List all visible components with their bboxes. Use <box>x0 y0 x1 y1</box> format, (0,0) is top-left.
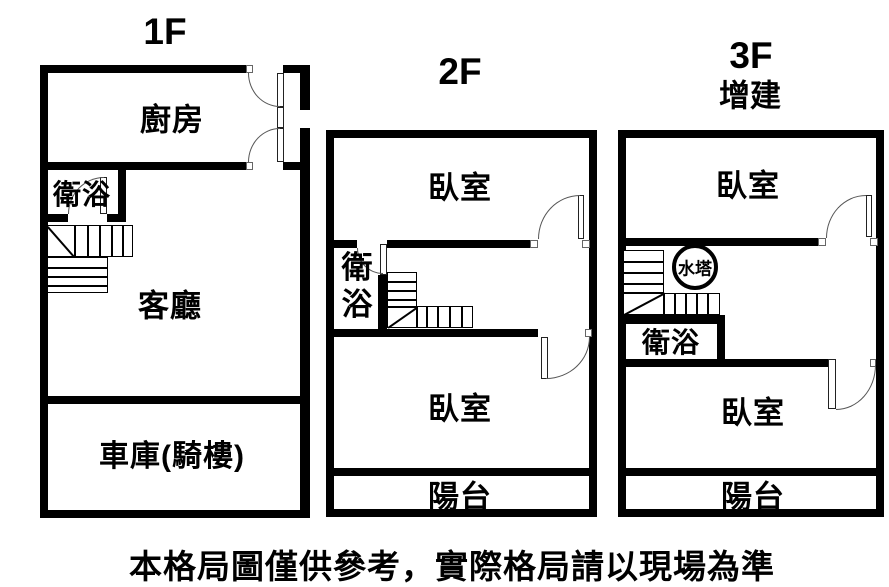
room-label-water-tank: 水塔 <box>678 255 712 280</box>
room-label-bedroom-top: 臥室 <box>428 163 492 208</box>
room-label-balcony: 陽台 <box>721 472 785 517</box>
door-jamb <box>870 238 878 246</box>
stair-tread <box>388 299 416 301</box>
stair-tread <box>674 294 676 314</box>
stair-tread <box>685 294 687 314</box>
stair-tread <box>87 226 89 256</box>
wall-right <box>876 130 884 517</box>
stair-flight-lower <box>47 257 108 293</box>
wall-right <box>589 130 597 517</box>
stair-tread <box>624 261 663 263</box>
stair-flight-vertical <box>623 250 664 293</box>
door-panel-fixed <box>277 107 284 128</box>
room-label-bedroom-bottom: 臥室 <box>721 388 785 433</box>
floor-plan-2f: 臥室 衛浴 臥室 陽台 <box>326 130 597 517</box>
door-jamb <box>530 240 538 248</box>
stair-tread <box>449 307 451 327</box>
door-arc-bedroom-bottom <box>836 365 876 410</box>
room-label-bath: 衛浴 <box>642 321 700 361</box>
stair-tread <box>707 294 709 314</box>
wall-bath-right <box>378 275 387 337</box>
wall-partition-seg <box>590 240 597 248</box>
title-3f-subtitle: 增建 <box>719 71 781 116</box>
wall-kitchen-divider-right <box>283 162 310 170</box>
door-jamb <box>818 238 826 246</box>
door-jamb <box>246 65 253 73</box>
door-leaf-bedroom-top <box>866 195 872 237</box>
stair-flight-vertical <box>387 272 417 307</box>
stair-tread <box>111 226 113 256</box>
room-label-bedroom-top: 臥室 <box>716 161 780 206</box>
stair-tread <box>99 226 101 256</box>
door-jamb <box>582 240 590 248</box>
stair-tread <box>388 290 416 292</box>
stair-tread <box>624 283 663 285</box>
door-jamb <box>246 162 253 170</box>
wall-garage-divider <box>40 396 310 404</box>
floor-plan-1f: 廚房 衛浴 客廳 車庫(騎樓) <box>40 65 310 518</box>
floor-plan-3f: 水塔 臥室 衛浴 臥室 陽台 <box>618 130 884 517</box>
stair-tread <box>624 272 663 274</box>
wall-right-lower <box>300 128 310 518</box>
wall-kitchen-divider-left <box>40 162 248 170</box>
wall-top-left <box>40 65 248 73</box>
stair-diagonal <box>47 226 76 259</box>
room-label-kitchen: 廚房 <box>140 95 204 140</box>
disclaimer-text: 本格局圖僅供參考，實際格局請以現場為準 <box>129 540 775 587</box>
wall-top <box>326 130 597 138</box>
stair-winder-corner <box>387 307 417 328</box>
door-jamb <box>585 329 592 337</box>
wall-partition-seg <box>618 238 818 246</box>
wall-bath-right <box>118 162 126 222</box>
door-arc-bedroom-bottom <box>546 337 590 379</box>
stair-flight-horizontal <box>664 293 720 315</box>
title-2f: 2F <box>438 51 481 93</box>
door-leaf-bedroom-bottom <box>828 359 836 409</box>
door-arc-bedroom-top <box>538 195 580 239</box>
stair-tread <box>122 226 124 256</box>
wall-left <box>326 130 334 517</box>
wall-bath-bottom-left <box>40 214 68 222</box>
room-label-bath: 衛浴 <box>53 173 111 213</box>
stair-winder-corner <box>47 225 75 257</box>
door-arc-bedroom-top <box>826 195 866 238</box>
wall-partition-seg <box>326 240 357 248</box>
stair-tread <box>461 307 463 327</box>
stair-tread <box>696 294 698 314</box>
door-arc-kitchen-bottom <box>248 128 280 162</box>
wall-top <box>618 130 884 138</box>
wall-right-upper <box>300 65 310 110</box>
stair-tread <box>48 285 107 287</box>
wall-partition-seg <box>387 240 530 248</box>
stair-diagonal <box>624 292 665 315</box>
title-1f: 1F <box>143 11 186 53</box>
wall-bottom <box>40 510 310 518</box>
stair-tread <box>48 267 107 269</box>
stair-tread <box>437 307 439 327</box>
stair-tread <box>48 276 107 278</box>
stair-flight-upper <box>75 225 133 257</box>
room-label-living: 客廳 <box>138 281 202 326</box>
wall-mid-divider-right <box>592 329 597 337</box>
stair-tread <box>426 307 428 327</box>
door-arc-kitchen-top <box>248 73 280 107</box>
stair-flight-horizontal <box>417 306 473 328</box>
room-label-balcony: 陽台 <box>428 472 492 517</box>
stair-winder-corner <box>623 293 664 315</box>
stair-tread <box>388 281 416 283</box>
wall-bath-bottom-right <box>107 214 126 222</box>
floorplan-canvas: 1F <box>0 0 889 587</box>
room-label-bath: 衛浴 <box>339 249 375 323</box>
room-label-bedroom-bottom: 臥室 <box>428 384 492 429</box>
stair-diagonal <box>388 306 418 328</box>
wall-mid-divider <box>326 329 538 337</box>
room-label-garage: 車庫(騎樓) <box>99 431 245 475</box>
